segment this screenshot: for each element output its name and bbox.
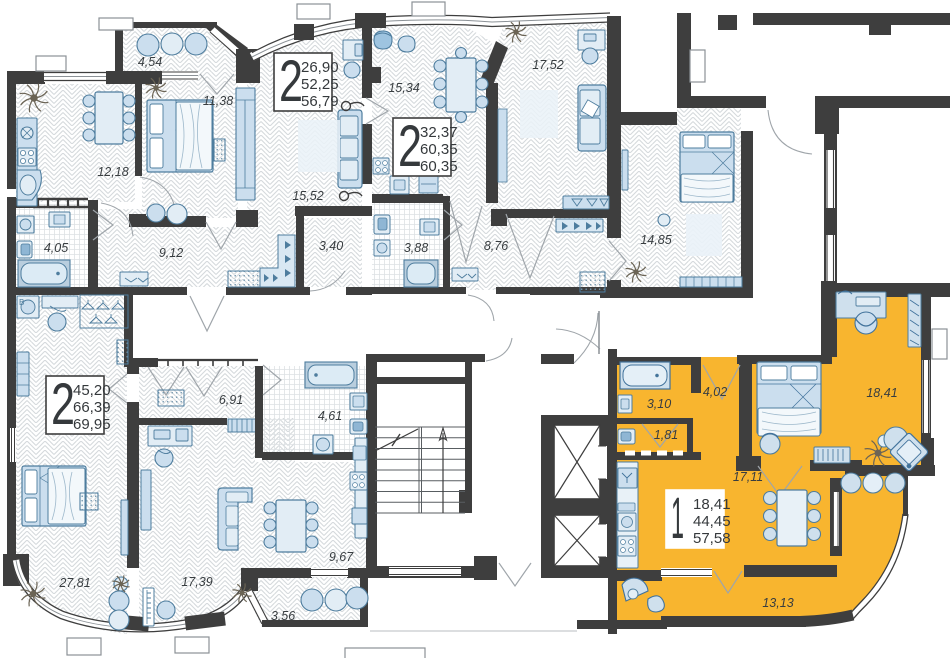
svg-text:17,52: 17,52 (532, 58, 563, 72)
svg-text:2: 2 (398, 114, 422, 179)
svg-text:18,41: 18,41 (693, 496, 731, 513)
svg-text:11,38: 11,38 (203, 94, 233, 108)
svg-text:18,41: 18,41 (866, 386, 897, 400)
svg-text:3,10: 3,10 (647, 397, 671, 411)
svg-text:4,61: 4,61 (318, 409, 342, 423)
svg-text:3,40: 3,40 (319, 239, 343, 253)
svg-text:56,79: 56,79 (301, 93, 339, 110)
svg-text:26,90: 26,90 (301, 59, 339, 76)
svg-text:2: 2 (51, 372, 75, 437)
svg-text:3,88: 3,88 (404, 241, 428, 255)
svg-text:17,39: 17,39 (181, 575, 212, 589)
svg-text:57,58: 57,58 (693, 530, 731, 547)
svg-text:B: B (19, 298, 24, 307)
svg-text:15,52: 15,52 (292, 189, 323, 203)
svg-text:17,11: 17,11 (733, 470, 763, 484)
svg-text:6,91: 6,91 (219, 393, 243, 407)
svg-text:1,81: 1,81 (654, 428, 678, 442)
svg-text:13,13: 13,13 (762, 596, 793, 610)
svg-text:32,37: 32,37 (420, 124, 458, 141)
svg-text:69,95: 69,95 (73, 416, 111, 433)
svg-text:4,02: 4,02 (703, 385, 727, 399)
svg-text:15,34: 15,34 (388, 81, 419, 95)
svg-text:8,76: 8,76 (484, 239, 508, 253)
svg-text:3,56: 3,56 (271, 609, 295, 623)
svg-text:27,81: 27,81 (58, 576, 90, 590)
svg-text:14,85: 14,85 (640, 233, 671, 247)
svg-text:66,39: 66,39 (73, 399, 111, 416)
svg-text:60,35: 60,35 (420, 141, 458, 158)
svg-text:12,18: 12,18 (97, 165, 128, 179)
svg-text:60,35: 60,35 (420, 158, 458, 175)
svg-text:4,54: 4,54 (138, 55, 162, 69)
svg-text:52,25: 52,25 (301, 76, 339, 93)
svg-text:44,45: 44,45 (693, 513, 731, 530)
svg-text:4,05: 4,05 (44, 241, 68, 255)
svg-text:9,67: 9,67 (329, 550, 354, 564)
svg-text:45,20: 45,20 (73, 382, 111, 399)
svg-text:1: 1 (671, 486, 684, 551)
svg-text:2: 2 (279, 49, 303, 114)
svg-text:9,12: 9,12 (159, 246, 183, 260)
